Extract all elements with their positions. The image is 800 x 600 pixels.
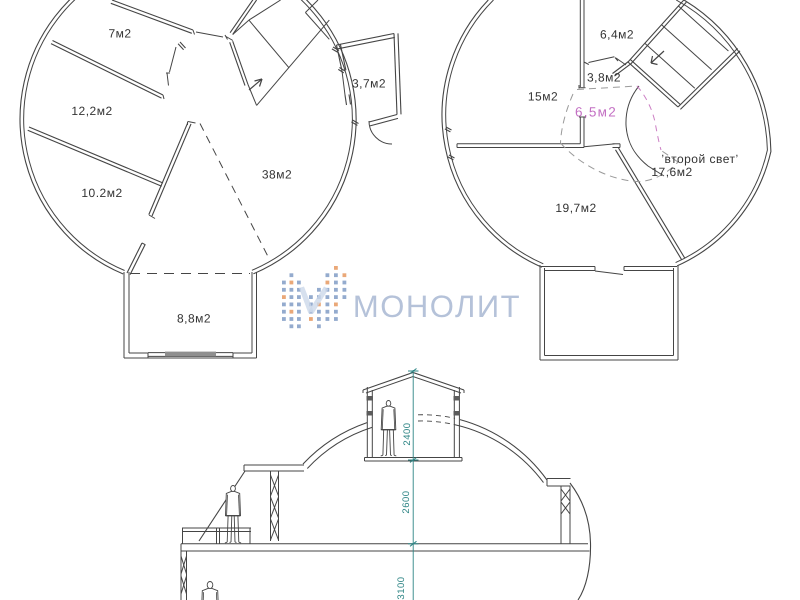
- svg-text:19,7м2: 19,7м2: [555, 201, 596, 215]
- svg-text:8,8м2: 8,8м2: [177, 312, 211, 326]
- svg-text:3,8м2: 3,8м2: [587, 71, 621, 85]
- svg-text:38м2: 38м2: [262, 168, 292, 182]
- svg-text:3,7м2: 3,7м2: [352, 77, 386, 91]
- svg-text:10.2м2: 10.2м2: [81, 186, 122, 200]
- svg-text:3100: 3100: [396, 576, 407, 599]
- svg-text:17,6м2: 17,6м2: [651, 165, 692, 179]
- svg-text:6,5м2: 6,5м2: [575, 105, 617, 120]
- svg-text:15м2: 15м2: [528, 90, 558, 104]
- svg-text:6,4м2: 6,4м2: [600, 28, 634, 42]
- svg-text:’второй свет’: ’второй свет’: [661, 152, 738, 166]
- svg-text:2600: 2600: [401, 490, 412, 513]
- svg-text:12,2м2: 12,2м2: [71, 104, 112, 118]
- svg-text:МОНОЛИТ: МОНОЛИТ: [353, 289, 521, 324]
- svg-text:2400: 2400: [402, 422, 413, 445]
- svg-text:7м2: 7м2: [108, 27, 131, 41]
